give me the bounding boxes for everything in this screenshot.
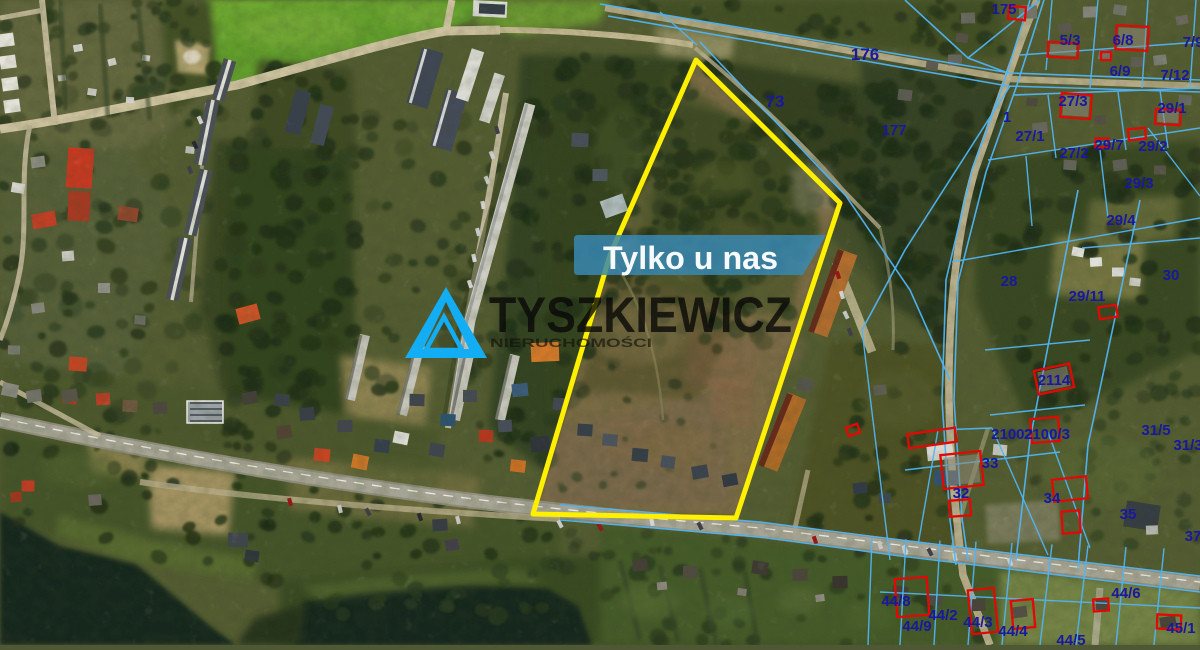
svg-text:34: 34	[1044, 490, 1061, 507]
svg-text:2100/3: 2100/3	[1024, 426, 1070, 443]
svg-text:44/4: 44/4	[998, 623, 1028, 640]
svg-text:Tylko u nas: Tylko u nas	[603, 240, 778, 276]
svg-text:31/5: 31/5	[1141, 422, 1170, 439]
svg-text:44/8: 44/8	[881, 593, 910, 610]
svg-text:27/2: 27/2	[1059, 145, 1088, 162]
svg-text:NIERUCHOMOŚCI: NIERUCHOMOŚCI	[490, 335, 652, 350]
svg-text:44/5: 44/5	[1056, 632, 1085, 645]
svg-text:176: 176	[851, 45, 879, 64]
svg-text:175: 175	[991, 1, 1016, 18]
svg-text:44/6: 44/6	[1111, 585, 1140, 602]
svg-text:44/2: 44/2	[928, 607, 957, 624]
svg-text:7/9: 7/9	[1183, 34, 1200, 51]
svg-text:32: 32	[953, 485, 970, 502]
svg-text:6/9: 6/9	[1110, 63, 1131, 80]
svg-text:TYSZKIEWICZ: TYSZKIEWICZ	[489, 287, 792, 343]
svg-text:29/3: 29/3	[1124, 175, 1153, 192]
svg-text:45/1: 45/1	[1166, 620, 1195, 637]
svg-text:30: 30	[1163, 267, 1180, 284]
svg-text:73: 73	[766, 92, 785, 111]
svg-text:27/1: 27/1	[1015, 128, 1044, 145]
svg-text:6/8: 6/8	[1113, 32, 1134, 49]
svg-text:33: 33	[982, 455, 999, 472]
svg-text:44/3: 44/3	[963, 614, 992, 631]
svg-text:1: 1	[1003, 109, 1011, 126]
svg-text:37: 37	[1185, 528, 1200, 545]
svg-text:27/3: 27/3	[1058, 93, 1087, 110]
svg-text:29/4: 29/4	[1106, 212, 1136, 229]
svg-text:29/1: 29/1	[1157, 100, 1186, 117]
svg-text:177: 177	[881, 122, 906, 139]
svg-text:7/12: 7/12	[1160, 67, 1189, 84]
svg-text:35: 35	[1120, 506, 1137, 523]
svg-text:44/9: 44/9	[902, 618, 931, 635]
svg-text:29/7: 29/7	[1094, 137, 1123, 154]
svg-text:28: 28	[1001, 273, 1018, 290]
svg-text:5/3: 5/3	[1060, 32, 1081, 49]
svg-text:31/3: 31/3	[1173, 437, 1200, 454]
svg-text:29/2: 29/2	[1138, 138, 1167, 155]
svg-text:2114: 2114	[1038, 372, 1071, 389]
svg-text:29/11: 29/11	[1069, 288, 1106, 305]
